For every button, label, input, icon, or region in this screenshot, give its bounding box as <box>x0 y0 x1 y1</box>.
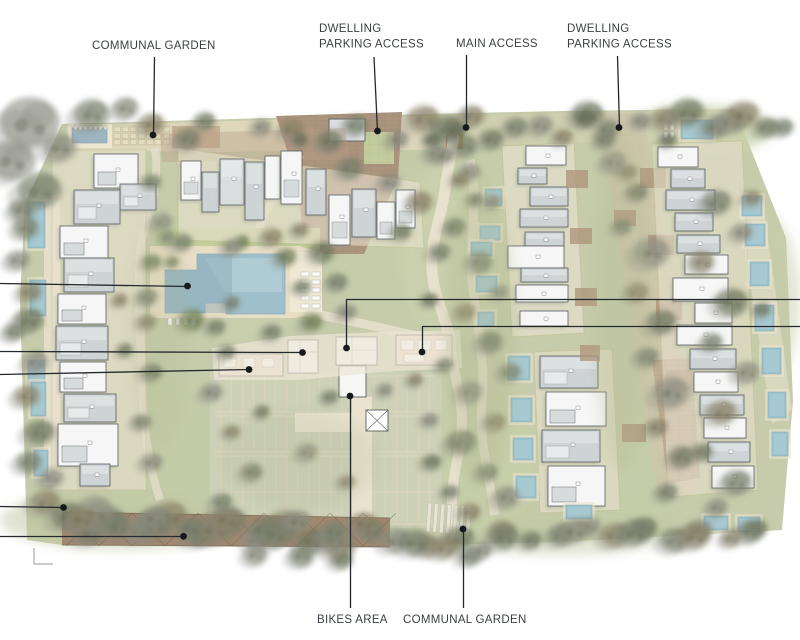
svg-text:PARKING ACCESS: PARKING ACCESS <box>319 39 424 51</box>
svg-text:DWELLING: DWELLING <box>319 23 381 35</box>
svg-text:DWELLING: DWELLING <box>567 23 629 35</box>
svg-text:BIKES AREA: BIKES AREA <box>317 614 388 626</box>
svg-text:COMMUNAL GARDEN: COMMUNAL GARDEN <box>403 614 527 626</box>
svg-text:PARKING ACCESS: PARKING ACCESS <box>567 39 672 51</box>
svg-text:MAIN ACCESS: MAIN ACCESS <box>456 38 538 50</box>
svg-text:COMMUNAL GARDEN: COMMUNAL GARDEN <box>92 40 216 52</box>
